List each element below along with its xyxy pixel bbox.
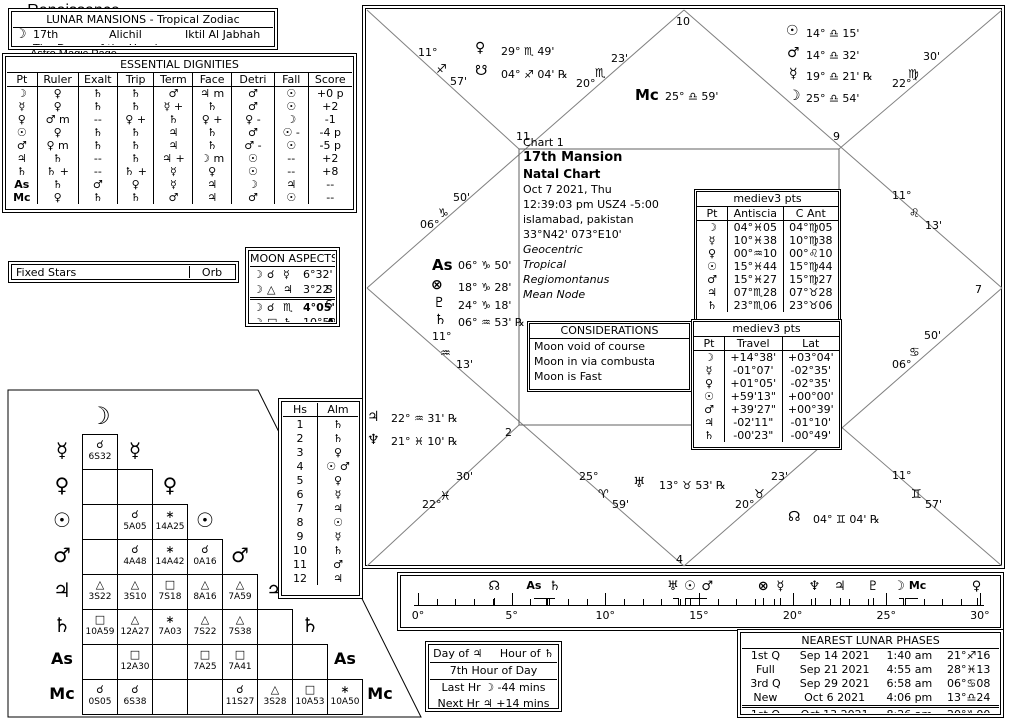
chart-date: Oct 7 2021, Thu	[523, 183, 693, 196]
aspect-cell: □7S18	[152, 574, 188, 610]
aspect-cell: ☌6S32	[82, 434, 118, 470]
table-row: ♀♂ m--♀ +♄♀ +♀ -☽-1	[7, 113, 352, 126]
dignity-cell: ♄	[118, 191, 154, 204]
aspect-cell: ☌11S27	[222, 679, 258, 715]
essential-dignities-table: PtRulerExaltTripTermFaceDetriFallScore☽♀…	[7, 73, 352, 204]
dignity-cell: ♃ m	[193, 87, 231, 101]
lunar-phases-title: NEAREST LUNAR PHASES	[742, 634, 999, 649]
column-header: C Ant	[783, 207, 838, 221]
aspect-icon: ∗	[153, 612, 187, 627]
planet-icon: ☊	[788, 509, 800, 525]
aspect-icon: ∗	[153, 507, 187, 522]
planet-icon: ☿	[789, 66, 798, 82]
phase-position: 06°♋08	[938, 677, 999, 691]
ruler-tick	[961, 599, 962, 606]
cusp-label: 50'	[453, 191, 470, 204]
almuten-glyph: ♂	[318, 557, 359, 571]
planet-icon: ♂	[222, 543, 258, 567]
moon-aspects-panel[interactable]: MOON ASPECTS ☽☌☿6°32' S☽△♃3°22' S☽☌♏4°05…	[245, 247, 340, 327]
cusp-label-sign-icon: ♒	[440, 346, 451, 360]
table-row: 2♄	[283, 431, 358, 445]
dignity-cell: ☽	[275, 113, 309, 126]
dignity-cell: ♂	[154, 191, 193, 204]
cusp-label: 25°	[579, 470, 599, 483]
planet-position: 14° ♎ 32'	[806, 49, 859, 62]
asc-icon: As	[525, 579, 543, 592]
dignity-cell: ♃	[193, 178, 231, 191]
ruler-tick	[418, 593, 419, 606]
aspect-orb: 10°59' A	[303, 315, 335, 322]
lunar-phases-table: 1st QSep 14 20211:40 am21°♐16FullSep 21 …	[742, 649, 999, 713]
table-row: ♂+39'27"+00°39'	[694, 403, 839, 416]
almuten-glyph: ☉	[318, 515, 359, 529]
jupiter-icon: ♃	[472, 647, 482, 660]
asc-icon: As	[327, 648, 363, 670]
planet-icon: ☿	[44, 438, 80, 462]
moon-icon: ☽	[253, 315, 267, 322]
table-row: 12♃	[283, 571, 358, 585]
moon-aspects-rows: ☽☌☿6°32' S☽△♃3°22' S☽☌♏4°05' A☽□♄10°59' …	[250, 267, 335, 322]
chart-type: Natal Chart	[523, 167, 693, 181]
dignity-cell: ♂	[231, 126, 274, 139]
lunar-mansions-title: LUNAR MANSIONS - Tropical Zodiac	[13, 13, 273, 28]
travel-lat-table-panel[interactable]: mediev3 pts PtTravelLat☽+14°38'+03°04'☿-…	[693, 321, 840, 448]
column-header: Exalt	[78, 73, 117, 87]
aspect-orb: 7A25	[188, 662, 222, 672]
planet-position: 04° ♐ 04' ℞	[501, 68, 568, 81]
lunar-phase-row: 1st QSep 14 20211:40 am21°♐16	[742, 649, 999, 663]
house-almuten-table: HsAlm1♄2♄3♀4☉ ♂5♀6☿7♃8☉9☿10♄11♂12♃	[283, 403, 358, 585]
column-header: Trip	[118, 73, 154, 87]
aspect-cell: ∗14A42	[152, 539, 188, 575]
dignity-cell: ♀	[118, 178, 154, 191]
planet-icon: ♀	[968, 579, 986, 594]
dignity-cell: ♄	[78, 139, 117, 152]
aspect-target-icon: ♄	[283, 315, 303, 322]
consideration-item: Moon void of course	[530, 339, 689, 354]
house-number: 11	[283, 557, 318, 571]
antiscia-table-title: mediev3 pts	[697, 192, 838, 207]
house-number: 5	[283, 473, 318, 487]
aspect-icon: □	[267, 315, 283, 322]
aspect-cell: □12A30	[117, 644, 153, 680]
aspect-cell: □10A53	[292, 679, 328, 715]
almuten-glyph: ♄	[318, 431, 359, 445]
asc-icon: As	[44, 648, 80, 670]
mansion-number: 17th	[33, 28, 58, 42]
planetary-hour-panel[interactable]: Day of ♃ Hour of ♄ 7th Hour of Day Last …	[425, 641, 562, 712]
table-row: 5♀	[283, 473, 358, 487]
fixed-stars-panel[interactable]: Fixed Stars Orb	[8, 261, 239, 283]
house-number: 9	[283, 529, 318, 543]
cusp-label: 50'	[924, 329, 941, 342]
chart-coords: 33°N42' 073°E10'	[523, 228, 693, 241]
table-row: 6☿	[283, 487, 358, 501]
dignity-cell: ♄	[78, 100, 117, 113]
ruler-marker-tick	[977, 598, 978, 606]
house-number: 3	[283, 445, 318, 459]
ruler-tick	[587, 599, 588, 606]
ruler-marker-connector	[905, 598, 918, 599]
phase-date: Sep 29 2021	[789, 677, 881, 691]
ruler-tick-label: 30°	[968, 609, 992, 622]
aspect-cell: ☌5A05	[117, 504, 153, 540]
value-cell: 15°♓27	[728, 273, 784, 286]
aspect-icon: ☌	[267, 300, 283, 315]
value-cell: -02°35'	[782, 364, 839, 377]
dignity-cell: ♄	[193, 126, 231, 139]
dignity-cell: ♀	[37, 87, 78, 101]
ruler-tick	[474, 599, 475, 606]
aspect-cell	[292, 644, 328, 680]
aspect-orb: 6S38	[118, 697, 152, 707]
planet-icon: ☋	[475, 63, 487, 79]
almuten-glyph: ♄	[318, 543, 359, 557]
aspect-cell: △7S22	[187, 609, 223, 645]
ruler-marker-connector	[547, 598, 555, 599]
phase-name: 3rd Q	[742, 677, 789, 691]
value-cell: ☽	[694, 351, 725, 365]
table-row: ♃-02'11"-01°10'	[694, 416, 839, 429]
column-header: Score	[308, 73, 352, 87]
aspect-icon: ☌	[267, 267, 283, 282]
planet-icon: ☉	[44, 508, 80, 532]
table-row: 3♀	[283, 445, 358, 459]
value-cell: 04°♍05	[783, 221, 838, 235]
cusp-label: 23'	[611, 52, 628, 65]
aspect-cell: △3S22	[82, 574, 118, 610]
value-cell: ☉	[694, 390, 725, 403]
table-row: ♄23°♏0623°♉06	[697, 299, 838, 312]
planet-position: 21° ♓ 10' ℞	[391, 435, 458, 448]
ruler-tick	[455, 599, 456, 606]
house-number: 7	[283, 501, 318, 515]
planet-icon: ♇	[433, 295, 446, 311]
lunar-phase-row: 1st QOct 13 20218:26 am20°♑00	[742, 707, 999, 714]
table-header-row: HsAlm	[283, 403, 358, 417]
almuten-column-header: Alm	[318, 403, 359, 417]
phase-position: 20°♑00	[938, 707, 999, 714]
ruler-marker-tick	[547, 598, 548, 606]
column-header: Face	[193, 73, 231, 87]
column-header: Pt	[7, 73, 37, 87]
considerations-title: CONSIDERATIONS	[530, 324, 689, 339]
ruler-tick	[868, 599, 869, 606]
aspect-orb: 6S32	[83, 452, 117, 462]
lunar-phases-panel[interactable]: NEAREST LUNAR PHASES 1st QSep 14 20211:4…	[737, 629, 1004, 718]
dignity-cell: ♄	[154, 113, 193, 126]
dignity-cell: --	[275, 152, 309, 165]
dignity-cell: ♀	[37, 126, 78, 139]
antiscia-table-panel[interactable]: mediev3 pts PtAntisciaC Ant☽04°♓0504°♍05…	[696, 191, 839, 321]
phase-position: 28°♓13	[938, 663, 999, 677]
table-header-row: PtTravelLat	[694, 337, 839, 351]
aspect-icon: ☌	[83, 682, 117, 697]
planet-position: 24° ♑ 18'	[458, 299, 511, 312]
degree-ruler-panel[interactable]: 0°5°10°15°20°25°30°☊As♄♅☉♂⊗☿♆♃♇☽Mc♀	[397, 572, 1004, 631]
chart-setting-node: Mean Node	[523, 288, 693, 301]
ruler-tick	[680, 599, 681, 606]
planet-icon: ⊗	[754, 579, 772, 594]
table-row: 11♂	[283, 557, 358, 571]
table-row: ♂♀ m♄♄♃♄♂ -☉-5 p	[7, 139, 352, 152]
table-row: ☽04°♓0504°♍05	[697, 221, 838, 235]
dignity-cell: ♃	[275, 178, 309, 191]
house-number: 6	[283, 487, 318, 501]
column-header: Detri	[231, 73, 274, 87]
aspect-orb: 7A03	[153, 627, 187, 637]
almuten-glyph: ♄	[318, 417, 359, 432]
house-almuten-panel[interactable]: HsAlm1♄2♄3♀4☉ ♂5♀6☿7♃8☉9☿10♄11♂12♃	[278, 398, 363, 599]
planet-icon: ☊	[485, 579, 503, 594]
dignity-cell: ♃	[193, 191, 231, 204]
aspect-icon: ∗	[153, 542, 187, 557]
column-header: Antiscia	[728, 207, 784, 221]
last-hour-label: Last Hr ☽ -44 mins	[430, 680, 557, 696]
dignity-cell: ♀	[37, 191, 78, 204]
planet-icon: ♇	[864, 579, 882, 594]
column-header: Fall	[275, 73, 309, 87]
ruler-tick	[624, 599, 625, 606]
planet-icon: ♅	[664, 579, 682, 594]
value-cell: 15°♍44	[783, 260, 838, 273]
aspect-orb: 0A16	[188, 557, 222, 567]
aspect-target-icon: ♃	[283, 282, 303, 297]
aspect-orb: 4A48	[118, 557, 152, 567]
planet-icon: ♀	[152, 473, 188, 497]
dignity-cell: +0 p	[308, 87, 352, 101]
aspect-icon: □	[223, 647, 257, 662]
considerations-list: Moon void of courseMoon in via combustaM…	[530, 339, 689, 384]
dignity-cell: ☿	[154, 165, 193, 178]
consideration-item: Moon is Fast	[530, 369, 689, 384]
considerations-panel[interactable]: CONSIDERATIONS Moon void of courseMoon i…	[529, 323, 690, 390]
planet-position: 19° ♎ 21' ℞	[806, 70, 873, 83]
aspect-orb: 12A30	[118, 662, 152, 672]
dignity-cell: ♀	[7, 113, 37, 126]
ruler-marker-connector	[534, 598, 546, 599]
almuten-glyph: ♀	[318, 445, 359, 459]
dignity-cell: ♄	[78, 126, 117, 139]
cusp-label-sign-icon: ♌	[909, 206, 920, 220]
ruler-tick	[605, 593, 606, 606]
aspect-icon: △	[118, 577, 152, 592]
planet-icon: ☉	[681, 579, 699, 594]
almuten-glyph: ☿	[318, 529, 359, 543]
ruler-tick	[942, 599, 943, 606]
value-cell: ☉	[697, 260, 728, 273]
phase-time: 6:58 am	[880, 677, 938, 691]
table-row: 10♄	[283, 543, 358, 557]
lunar-mansions-panel[interactable]: LUNAR MANSIONS - Tropical Zodiac ☽ 17th …	[8, 8, 278, 50]
aspect-cell: △7S38	[222, 609, 258, 645]
dignity-cell: ☿	[7, 100, 37, 113]
cusp-label: 22°	[422, 498, 442, 511]
dignity-cell: --	[78, 113, 117, 126]
ruler-tick-label: 0°	[406, 609, 430, 622]
planet-icon: ♃	[367, 409, 380, 425]
aspect-target-icon: ♏	[283, 300, 303, 315]
table-header-row: PtAntisciaC Ant	[697, 207, 838, 221]
dignity-cell: ☽	[231, 178, 274, 191]
value-cell: +39'27"	[725, 403, 783, 416]
dignity-cell: ♂ -	[231, 139, 274, 152]
dignity-cell: ♀ +	[118, 113, 154, 126]
aspect-icon: △	[188, 577, 222, 592]
planet-icon: ☽	[890, 579, 908, 594]
value-cell: 07°♏28	[728, 286, 784, 299]
almuten-glyph: ♀	[318, 473, 359, 487]
aspect-orb: 7S18	[153, 592, 187, 602]
aspect-orb: 10A59	[83, 627, 117, 637]
ruler-tick	[718, 599, 719, 606]
aspect-icon: △	[223, 612, 257, 627]
aspect-cell	[82, 539, 118, 575]
value-cell: ♂	[694, 403, 725, 416]
table-row: ☿10°♓3810°♍38	[697, 234, 838, 247]
table-row: ☽♀♄♄♂♃ m♂☉+0 p	[7, 87, 352, 101]
ruler-marker-connector	[685, 598, 690, 599]
aspect-cell: □7A25	[187, 644, 223, 680]
aspect-icon: □	[188, 647, 222, 662]
value-cell: +03°04'	[782, 351, 839, 365]
travel-lat-table-title: mediev3 pts	[694, 322, 839, 337]
almuten-glyph: ☉ ♂	[318, 459, 359, 473]
value-cell: 00°♒10	[728, 247, 784, 260]
chart-label: Chart 1	[523, 136, 693, 149]
aspect-orb: 7S22	[188, 627, 222, 637]
cusp-label: 13'	[456, 358, 473, 371]
value-cell: ♄	[694, 429, 725, 442]
ruler-tick	[549, 599, 550, 606]
house-number: 2	[505, 426, 512, 439]
day-hour-row: Day of ♃ Hour of ♄	[430, 646, 557, 663]
dignity-cell: ♂	[231, 100, 274, 113]
chart-title: 17th Mansion	[523, 150, 693, 165]
phase-name: New	[742, 691, 789, 707]
aspect-orb: 14A42	[153, 557, 187, 567]
value-cell: 07°♉28	[783, 286, 838, 299]
aspect-icon: □	[118, 647, 152, 662]
hour-of-label: Hour of	[500, 647, 541, 660]
dignity-cell: ♃ +	[154, 152, 193, 165]
ruler-tick	[886, 593, 887, 606]
cusp-label-sign-icon: ♍	[908, 67, 919, 81]
table-row: ☿♀♄♄☿ +♄♂☉+2	[7, 100, 352, 113]
value-cell: +59'13"	[725, 390, 783, 403]
moon-aspect-row: ☽☌♏4°05' A	[250, 297, 335, 315]
planet-icon: ☉	[187, 508, 223, 532]
value-cell: 10°♍38	[783, 234, 838, 247]
aspect-icon: △	[258, 682, 292, 697]
dignity-cell: ♀ m	[37, 139, 78, 152]
aspect-orb: 5A05	[118, 522, 152, 532]
ruler-tick	[830, 599, 831, 606]
chart-place: islamabad, pakistan	[523, 213, 693, 226]
chart-wheel-panel[interactable]: 101197542 06°♑50'11°♒13'22°♓30'25°♈59'23…	[362, 5, 1005, 569]
dignity-cell: ♄	[118, 126, 154, 139]
dignity-cell: ☉ -	[275, 126, 309, 139]
planet-icon: ☿	[117, 438, 153, 462]
dignity-cell: ☉	[275, 139, 309, 152]
aspect-cell: △8A16	[187, 574, 223, 610]
planet-icon: ♀	[475, 40, 485, 56]
dignity-cell: ♂	[231, 87, 274, 101]
house-number: 9	[833, 130, 840, 143]
next-hour-label: Next Hr ♃ +14 mins	[430, 696, 557, 707]
phase-time: 8:26 am	[880, 707, 938, 714]
table-row: ♄♄ +--♄ +☿♀☉--+8	[7, 165, 352, 178]
ruler-tick	[437, 599, 438, 606]
ruler-tick	[661, 599, 662, 606]
value-cell: -01°10'	[782, 416, 839, 429]
dignity-cell: ♄	[193, 139, 231, 152]
cusp-label: 20°	[576, 77, 596, 90]
cusp-label-sign-icon: ♓	[440, 489, 451, 503]
aspect-orb: 4°05' A	[303, 300, 335, 315]
aspect-cell	[82, 504, 118, 540]
table-row: ♃07°♏2807°♉28	[697, 286, 838, 299]
aspect-orb: 7A59	[223, 592, 257, 602]
aspect-icon: □	[83, 612, 117, 627]
value-cell: 23°♏06	[728, 299, 784, 312]
planet-icon: ♆	[806, 579, 824, 594]
aspect-icon: △	[118, 612, 152, 627]
aspect-orb: 14A25	[153, 522, 187, 532]
house-column-header: Hs	[283, 403, 318, 417]
cusp-label-sign-icon: ♈	[598, 487, 609, 501]
travel-lat-table: PtTravelLat☽+14°38'+03°04'☿-01°07'-02°35…	[694, 337, 839, 442]
planet-icon: As	[432, 256, 453, 274]
ruler-tick-label: 15°	[687, 609, 711, 622]
ruler-tick	[924, 599, 925, 606]
planet-icon: ♂	[787, 45, 800, 61]
phase-position: 13°♎24	[938, 691, 999, 707]
dignity-cell: ♂	[231, 191, 274, 204]
table-row: 7♃	[283, 501, 358, 515]
ruler-tick	[530, 599, 531, 606]
column-header: Term	[154, 73, 193, 87]
aspect-icon: ☌	[83, 437, 117, 452]
value-cell: 23°♉06	[783, 299, 838, 312]
aspect-icon: ☌	[223, 682, 257, 697]
aspect-orb: 12A27	[118, 627, 152, 637]
planet-icon: ♂	[44, 543, 80, 567]
moon-aspects-title: MOON ASPECTS	[250, 252, 335, 267]
cusp-label: 06°	[420, 218, 440, 231]
aspect-orb: 6°32' S	[303, 267, 333, 282]
mc-icon: Mc	[44, 683, 80, 705]
planet-icon: ♄	[546, 579, 564, 594]
aspect-cell: □10A59	[82, 609, 118, 645]
cusp-label: 11°	[432, 330, 452, 343]
table-row: Mc♀♄♄♂♃♂☉--	[7, 191, 352, 204]
aspect-cell: △7A59	[222, 574, 258, 610]
essential-dignities-panel[interactable]: ESSENTIAL DIGNITIES PtRulerExaltTripTerm…	[2, 53, 357, 213]
planet-icon: ☿	[771, 579, 789, 594]
fixed-stars-orb-header: Orb	[189, 266, 234, 278]
moon-icon: ☽	[15, 28, 27, 42]
house-number: 4	[676, 553, 683, 566]
table-row: 4☉ ♂	[283, 459, 358, 473]
ruler-marker-tick	[840, 598, 841, 606]
value-cell: ♀	[694, 377, 725, 390]
chart-info: Chart 1 17th Mansion Natal Chart Oct 7 2…	[523, 136, 693, 301]
cusp-label: 11°	[892, 469, 912, 482]
dignity-cell: ♀	[37, 100, 78, 113]
moon-icon: ☽	[253, 267, 267, 282]
table-row: 1♄	[283, 417, 358, 432]
